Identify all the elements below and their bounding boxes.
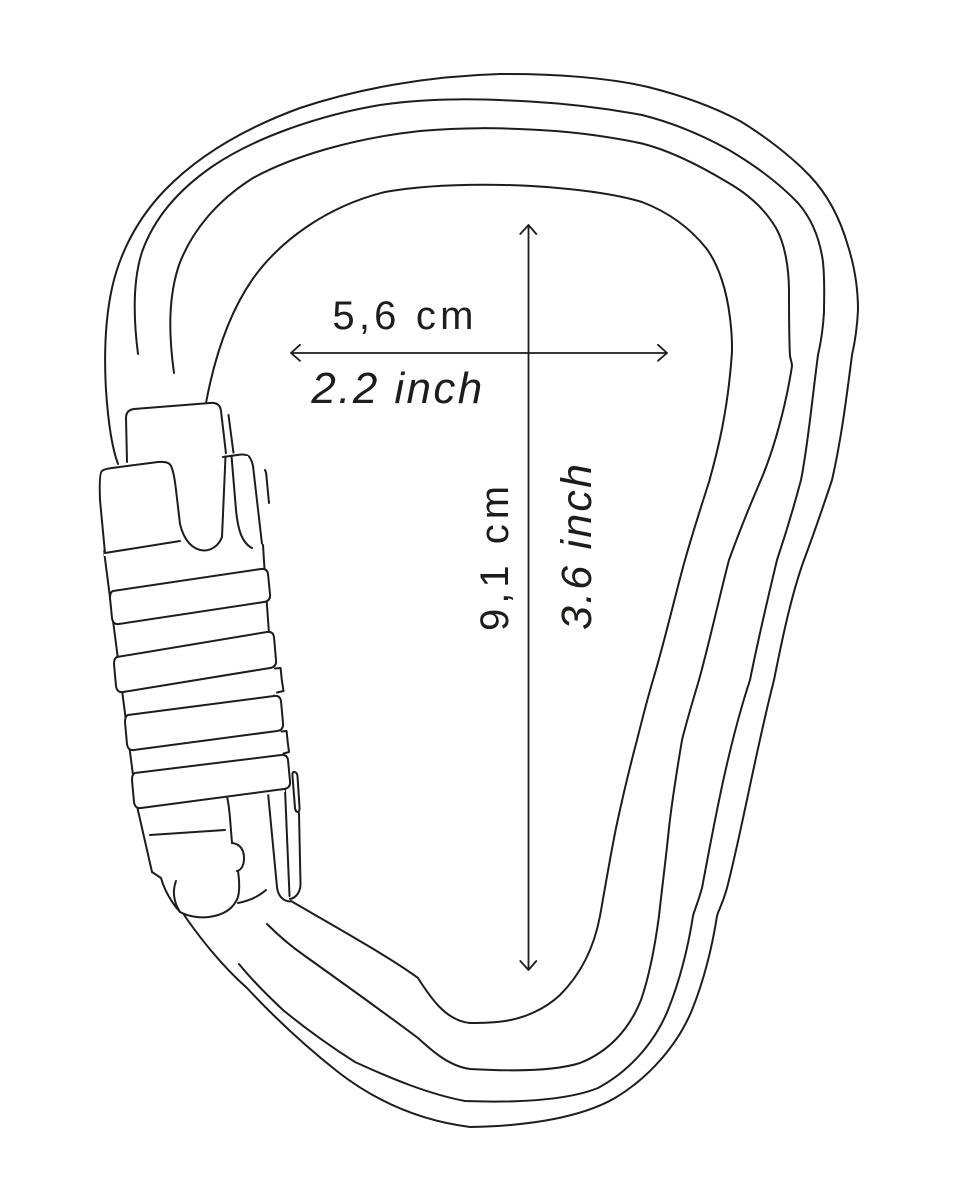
svg-text:9,1 cm: 9,1 cm — [473, 481, 517, 631]
svg-text:5,6 cm: 5,6 cm — [332, 294, 477, 338]
svg-text:3.6 inch: 3.6 inch — [553, 462, 601, 630]
svg-text:2.2 inch: 2.2 inch — [310, 364, 484, 413]
